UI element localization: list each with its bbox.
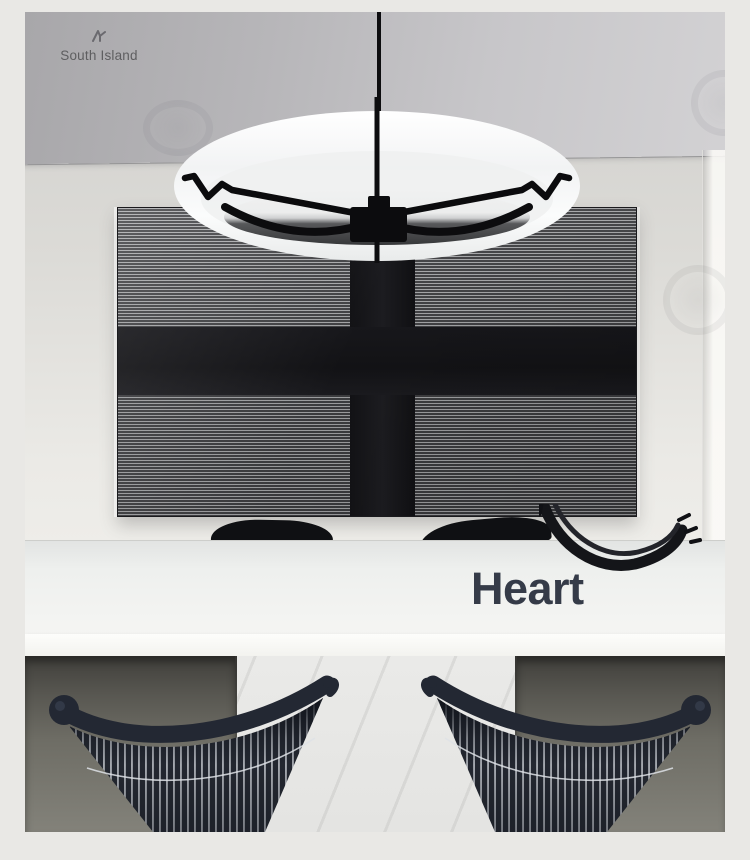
brand-mark-icon <box>90 28 108 43</box>
chair-roll-curl-inner <box>55 701 65 711</box>
watermark-circle <box>663 265 725 335</box>
chair-roll-curl <box>49 695 79 725</box>
chair-basket-shade <box>437 698 691 832</box>
chair-roll-curl-inner <box>695 701 705 711</box>
table-front-edge <box>25 634 725 656</box>
lamp-rod <box>375 97 380 209</box>
chair-roll-tip <box>425 682 433 693</box>
brand-name: South Island <box>60 48 137 63</box>
ring-pendant-lamp <box>165 97 589 269</box>
wire-chair-right <box>415 664 725 832</box>
brand-logo: South Island <box>39 28 159 65</box>
wire-chair-left <box>35 664 345 832</box>
lamp-hub <box>350 207 407 242</box>
chair-roll-curl <box>681 695 711 725</box>
chair-roll-tip <box>327 682 335 693</box>
chair-basket-shade <box>69 698 323 832</box>
product-photo: South Island Heart <box>25 12 725 832</box>
caption-text: Heart <box>471 563 584 615</box>
